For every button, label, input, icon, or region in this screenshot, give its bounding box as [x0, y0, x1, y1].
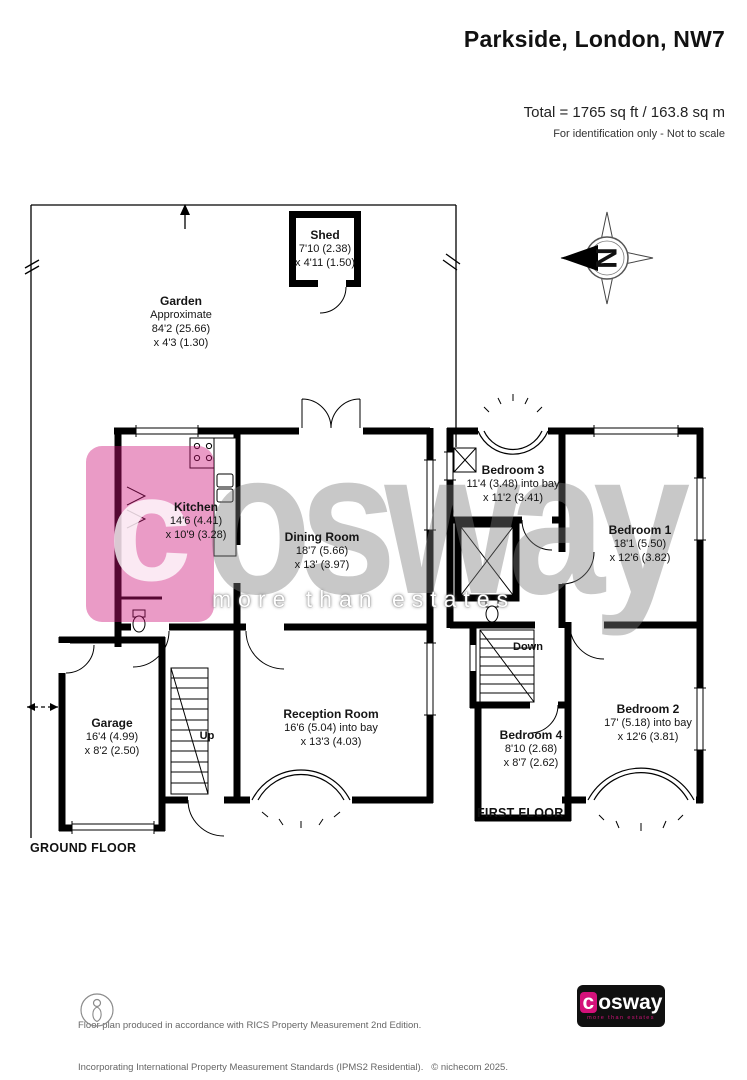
scale-disclaimer: For identification only - Not to scale	[553, 128, 725, 140]
stair-void-icon	[458, 524, 516, 598]
footer-disclaimer: Floor plan produced in accordance with R…	[78, 990, 508, 1080]
room-label-garage: Garage 16'4 (4.99) x 8'2 (2.50)	[85, 716, 140, 759]
cosway-logo-c-mark: c	[580, 992, 598, 1013]
compass-north-letter: N	[591, 247, 624, 269]
stairs-up-label: Up	[200, 730, 215, 742]
room-label-dining-room: Dining Room 18'7 (5.66) x 13' (3.97)	[285, 530, 360, 573]
first-floor-openings	[444, 394, 706, 831]
room-label-bedroom-4: Bedroom 4 8'10 (2.68) x 8'7 (2.62)	[500, 728, 563, 771]
room-label-bedroom-2: Bedroom 2 17' (5.18) into bay x 12'6 (3.…	[604, 702, 692, 745]
cosway-logo: c osway more than estates	[577, 985, 665, 1027]
floorplan-page: N c osway more than estates Parkside, Lo…	[0, 0, 747, 1080]
stairs-down-label: Down	[513, 641, 543, 653]
page-title: Parkside, London, NW7	[464, 26, 725, 53]
room-label-bedroom-1: Bedroom 1 18'1 (5.50) x 12'6 (3.82)	[609, 523, 672, 566]
first-floor-label: FIRST FLOOR	[477, 806, 564, 820]
ground-floor-label: GROUND FLOOR	[30, 841, 136, 855]
cosway-logo-text: c osway	[580, 992, 663, 1013]
room-label-reception-room: Reception Room 16'6 (5.04) into bay x 13…	[283, 707, 378, 750]
room-label-shed: Shed 7'10 (2.38) x 4'11 (1.50)	[295, 228, 355, 271]
toilet-icon	[486, 600, 498, 622]
room-label-bedroom-3: Bedroom 3 11'4 (3.48) into bay x 11'2 (3…	[466, 463, 559, 506]
cosway-logo-tagline: more than estates	[587, 1015, 655, 1021]
total-area: Total = 1765 sq ft / 163.8 sq m	[524, 104, 725, 121]
compass-rose: N	[561, 212, 653, 304]
room-label-garden: Garden Approximate 84'2 (25.66) x 4'3 (1…	[150, 294, 212, 350]
garden-arrows	[27, 204, 190, 711]
nichecom-icon	[78, 990, 116, 1030]
room-label-kitchen: Kitchen 14'6 (4.41) x 10'9 (3.28)	[166, 500, 227, 543]
footer: Floor plan produced in accordance with R…	[78, 990, 508, 1080]
